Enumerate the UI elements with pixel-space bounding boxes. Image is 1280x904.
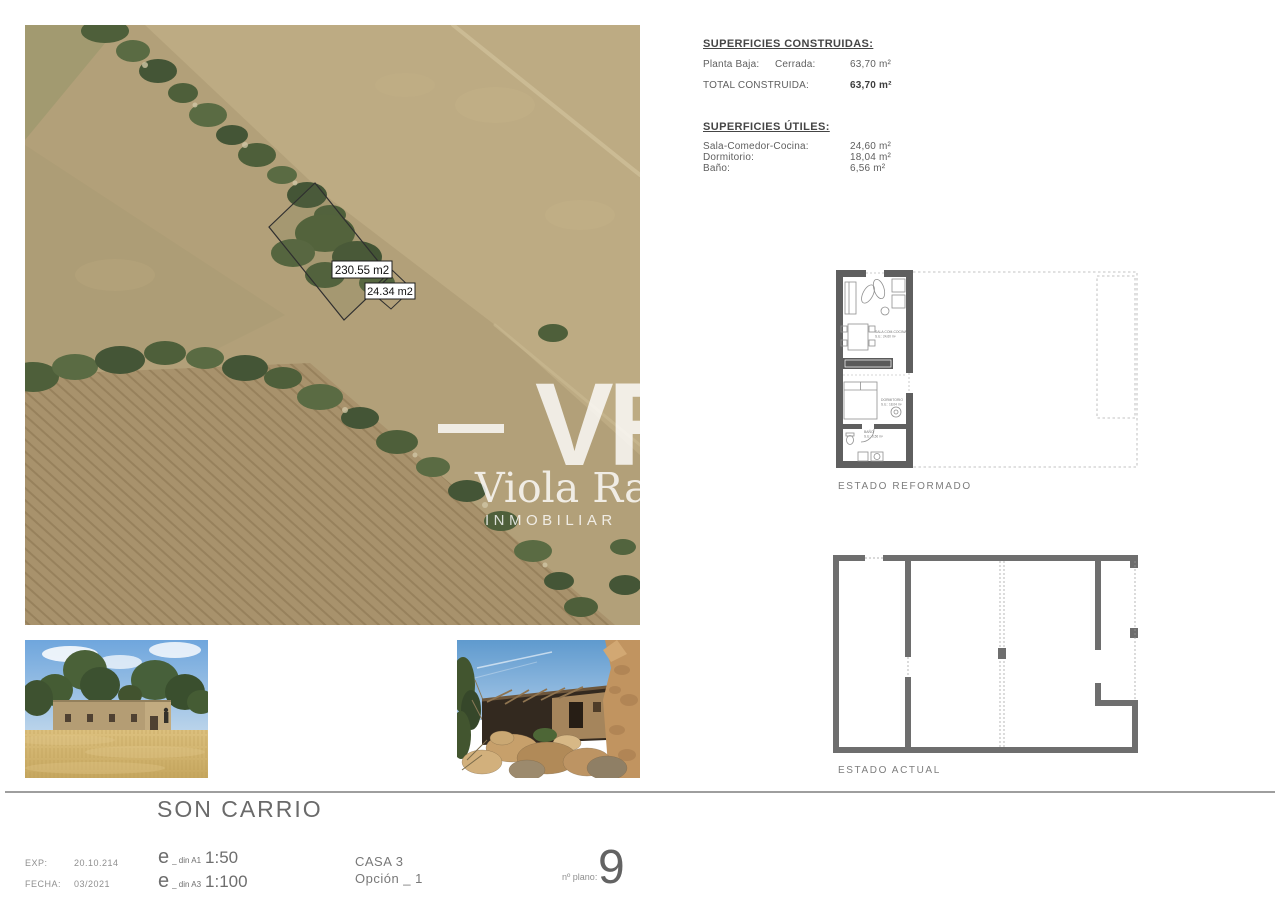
furniture-living (841, 278, 905, 350)
bathroom-walls (843, 424, 906, 429)
floorplan-estado-reformado: SALA COM-COCINA S.U.: 24,60 m² DORMITORI… (828, 262, 1140, 472)
casa-label: CASA 3 (355, 854, 404, 869)
useful-surfaces-title: SUPERFICIES ÚTILES: (703, 121, 830, 133)
svg-text:230.55 m2: 230.55 m2 (335, 265, 389, 277)
svg-text:24.34 m2: 24.34 m2 (367, 286, 413, 298)
svg-text:SALA COM-COCINA: SALA COM-COCINA (875, 330, 907, 334)
watermark-subtitle: INMOBILIAR (485, 512, 617, 529)
useful-row-value: 18,04 m² (850, 152, 891, 163)
plan-sheet: 230.55 m2 24.34 m2 VR Viola Ra INMOBILIA… (0, 0, 1280, 904)
bush (533, 728, 557, 742)
footer-divider (5, 791, 1275, 793)
plano-label: nº plano: (562, 872, 597, 882)
plano-number: 9 (598, 840, 625, 895)
photo-house-ruins (457, 640, 640, 778)
built-total-value: 63,70 m² (850, 80, 892, 91)
exp-label: EXP: (25, 858, 48, 868)
scale-a3: e_ din A31:100 (158, 870, 248, 893)
scale-a3-e: e (158, 870, 169, 892)
scale-a3-value: 1:100 (205, 872, 248, 891)
exp-value: 20.10.214 (74, 858, 119, 868)
person (164, 708, 169, 723)
floorplan-estado-actual (828, 550, 1140, 756)
sheet-title: SON CARRIO (157, 796, 323, 823)
svg-text:S.U.: 24,60 m²: S.U.: 24,60 m² (875, 335, 896, 339)
built-total-label: TOTAL CONSTRUIDA: (703, 80, 809, 91)
useful-row-value: 6,56 m² (850, 163, 885, 174)
built-surfaces-title: SUPERFICIES CONSTRUIDAS: (703, 38, 873, 50)
svg-text:DORMITORIO: DORMITORIO (881, 398, 903, 402)
actual-walls (833, 555, 1138, 753)
watermark-name: Viola Ra (474, 464, 640, 512)
photo-house-exterior (25, 640, 208, 778)
kitchen-counter (843, 358, 893, 369)
caption-estado-actual: ESTADO ACTUAL (838, 765, 941, 776)
svg-text:S.U.: 6,56 m²: S.U.: 6,56 m² (864, 435, 883, 439)
area-label-annex: 24.34 m2 (365, 283, 415, 299)
svg-text:S.U.: 18,04 m²: S.U.: 18,04 m² (881, 403, 902, 407)
scale-a1: e_ din A11:50 (158, 846, 238, 869)
opcion-label: Opción _ 1 (355, 871, 423, 886)
building (53, 700, 171, 732)
scale-a1-value: 1:50 (205, 848, 238, 867)
fecha-value: 03/2021 (74, 879, 110, 889)
built-row-sub: Cerrada: (775, 59, 816, 70)
scale-a1-din: _ din A1 (172, 856, 201, 865)
useful-row-label: Baño: (703, 163, 730, 174)
fecha-label: FECHA: (25, 879, 61, 889)
plan-plot-dashed (913, 272, 1137, 467)
ruin-back-wall (552, 692, 607, 740)
built-row-value: 63,70 m² (850, 59, 891, 70)
watermark-bar (438, 424, 504, 433)
central-pillar (998, 648, 1006, 659)
useful-row-value: 24,60 m² (850, 141, 891, 152)
caption-estado-reformado: ESTADO REFORMADO (838, 481, 972, 492)
scale-a1-e: e (158, 846, 169, 868)
useful-row-label: Dormitorio: (703, 152, 754, 163)
useful-row-label: Sala-Comedor-Cocina: (703, 141, 809, 152)
svg-text:BAÑO: BAÑO (864, 429, 874, 434)
scale-a3-din: _ din A3 (172, 880, 201, 889)
area-label-main: 230.55 m2 (332, 261, 392, 278)
built-row-label: Planta Baja: (703, 59, 759, 70)
aerial-photo: 230.55 m2 24.34 m2 VR Viola Ra INMOBILIA… (25, 25, 640, 625)
